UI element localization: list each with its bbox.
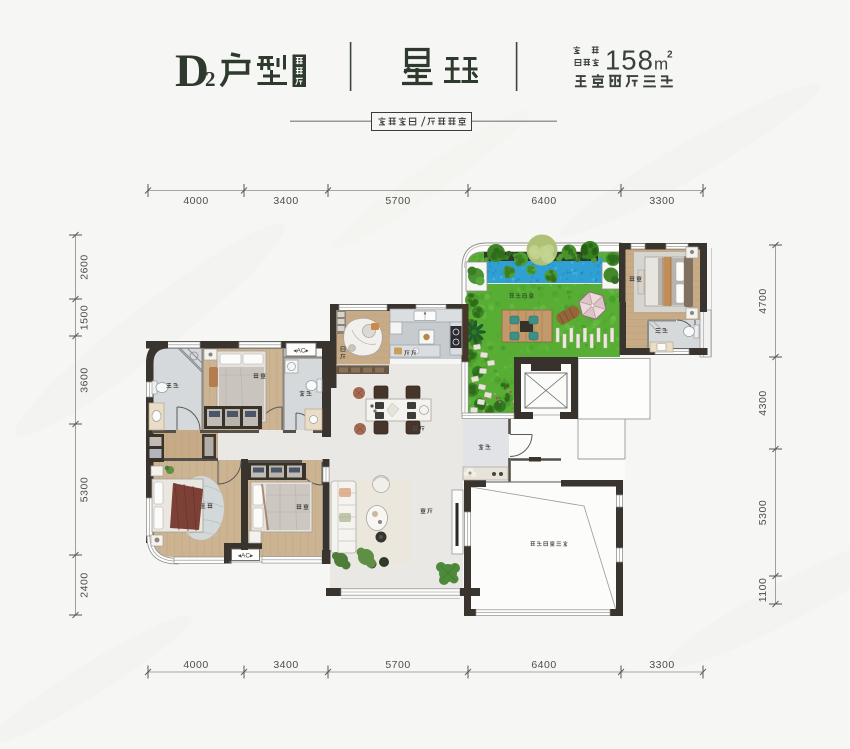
svg-text:2400: 2400: [79, 572, 91, 597]
svg-text:1100: 1100: [757, 578, 769, 603]
svg-text:4000: 4000: [183, 195, 208, 207]
svg-text:4300: 4300: [757, 390, 769, 415]
svg-text:4000: 4000: [183, 659, 208, 671]
svg-text:3400: 3400: [273, 659, 298, 671]
svg-text:3300: 3300: [649, 659, 674, 671]
svg-text:5700: 5700: [385, 659, 410, 671]
svg-text:3600: 3600: [79, 367, 91, 392]
svg-text:D: D: [175, 45, 209, 97]
svg-text:3400: 3400: [273, 195, 298, 207]
svg-text:158: 158: [605, 45, 654, 76]
svg-text:◂AC▸: ◂AC▸: [238, 553, 254, 560]
svg-text:2: 2: [667, 50, 673, 61]
svg-text:4700: 4700: [757, 288, 769, 313]
svg-text:5700: 5700: [385, 195, 410, 207]
svg-text:6400: 6400: [531, 195, 556, 207]
svg-text:3300: 3300: [649, 195, 674, 207]
svg-text:5300: 5300: [79, 477, 91, 502]
svg-text:2: 2: [205, 67, 216, 91]
svg-text:5300: 5300: [757, 500, 769, 525]
svg-text:◂AC▸: ◂AC▸: [293, 348, 309, 355]
svg-text:1500: 1500: [79, 305, 91, 330]
svg-text:6400: 6400: [531, 659, 556, 671]
svg-text:2600: 2600: [79, 254, 91, 279]
